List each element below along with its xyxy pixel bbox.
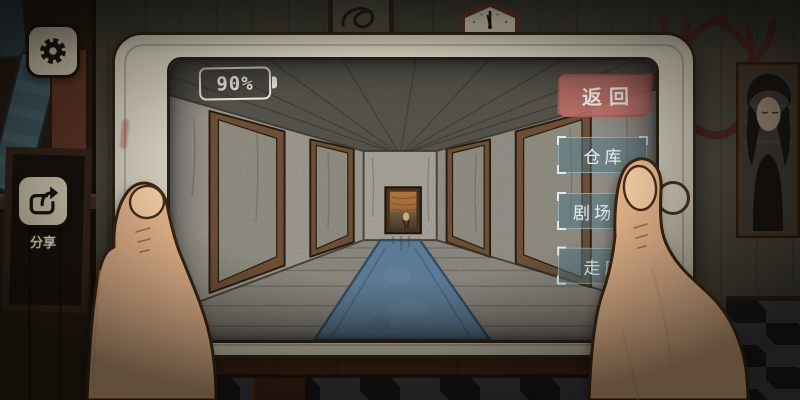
- battery-percent: 90%: [216, 72, 254, 95]
- game-room-scene: 90% 返回 仓库 剧场屋 走廊: [0, 0, 800, 400]
- portrait-art: [736, 62, 800, 238]
- gear-icon: [35, 33, 71, 69]
- corner-bracket-icon: [639, 247, 648, 256]
- share-icon: [25, 183, 61, 219]
- corner-bracket-icon: [639, 276, 648, 285]
- bezel-stain: [129, 235, 134, 253]
- nav-label: 剧场屋: [569, 199, 636, 224]
- nav-label: 走廊: [579, 253, 625, 278]
- settings-button[interactable]: [26, 24, 80, 78]
- corner-bracket-icon: [639, 192, 648, 201]
- home-button[interactable]: [656, 181, 690, 215]
- book-spine: [0, 0, 29, 59]
- corner-bracket-icon: [639, 136, 648, 145]
- share-button[interactable]: [16, 174, 70, 228]
- tablet-device: 90% 返回 仓库 剧场屋 走廊: [112, 32, 696, 358]
- corner-bracket-icon: [639, 165, 648, 174]
- checkered-floor: [726, 296, 800, 400]
- back-button[interactable]: 返回: [557, 72, 655, 119]
- nav-button-corridor[interactable]: 走廊: [558, 248, 647, 285]
- corner-bracket-icon: [557, 276, 566, 285]
- corner-bracket-icon: [557, 136, 566, 145]
- corner-bracket-icon: [557, 165, 566, 174]
- share-label: 分享: [16, 232, 70, 251]
- tablet-screen: 90% 返回 仓库 剧场屋 走廊: [167, 57, 659, 343]
- corner-bracket-icon: [557, 221, 566, 230]
- nav-button-theater[interactable]: 剧场屋: [558, 193, 647, 229]
- corner-bracket-icon: [557, 247, 566, 256]
- battery-indicator: 90%: [199, 66, 272, 100]
- nav-button-warehouse[interactable]: 仓库: [558, 137, 647, 173]
- corner-bracket-icon: [639, 221, 648, 230]
- bezel-stain: [119, 119, 129, 150]
- wall-portrait: [736, 62, 800, 238]
- nav-label: 仓库: [580, 143, 626, 168]
- corner-bracket-icon: [557, 192, 566, 201]
- table-leg: [252, 378, 308, 400]
